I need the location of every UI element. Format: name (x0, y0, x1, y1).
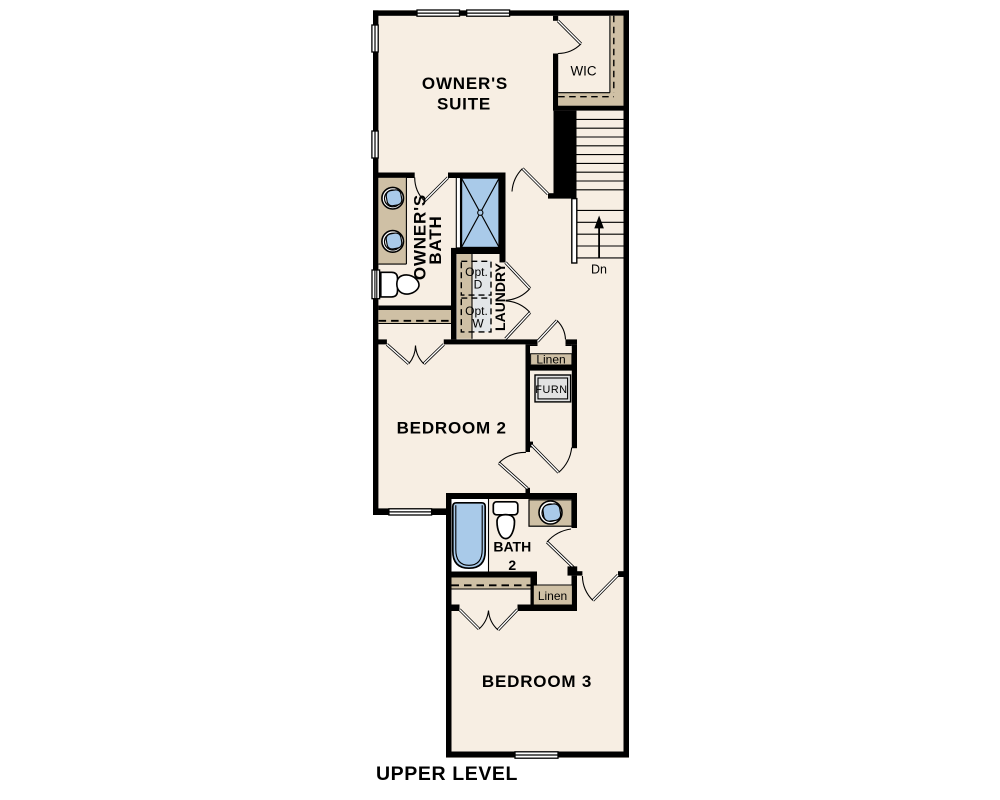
svg-text:SUITE: SUITE (437, 95, 491, 114)
svg-text:FURN: FURN (535, 384, 567, 396)
svg-text:Dn: Dn (591, 263, 607, 277)
svg-text:2: 2 (508, 557, 516, 573)
svg-text:Linen: Linen (536, 352, 565, 366)
svg-text:LAUNDRY: LAUNDRY (492, 262, 508, 331)
svg-text:BATH: BATH (493, 538, 531, 554)
svg-text:WIC: WIC (570, 64, 596, 79)
svg-text:W: W (472, 317, 484, 331)
svg-text:BATH: BATH (426, 215, 445, 264)
svg-text:UPPER LEVEL: UPPER LEVEL (376, 763, 518, 785)
svg-text:Linen: Linen (538, 589, 567, 603)
svg-text:BEDROOM 3: BEDROOM 3 (482, 672, 592, 691)
svg-text:OWNER'S: OWNER'S (422, 74, 508, 93)
svg-text:BEDROOM 2: BEDROOM 2 (397, 418, 507, 437)
svg-text:D: D (474, 277, 483, 291)
